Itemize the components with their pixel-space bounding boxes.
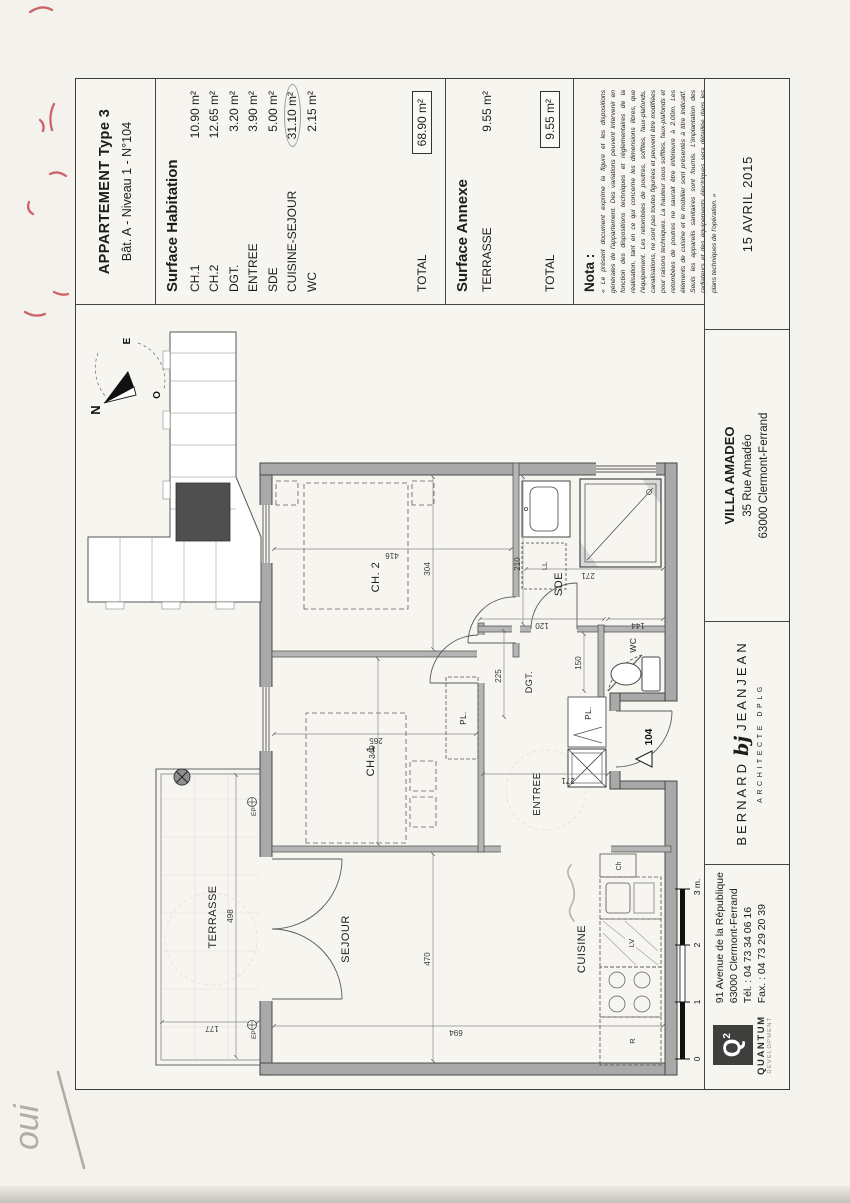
compass-n: N [88,405,103,414]
bathroom-fixtures [522,479,661,691]
compass-o: O [152,391,163,399]
architect-block: BERNARD bj JEANJEAN ARCHITECTE DPLG [705,621,789,864]
key-plan-highlighted-unit [176,483,230,541]
fixture-label-ll: LL [540,562,549,570]
room-label-sejour: SEJOUR [340,915,352,963]
apartment-location-subtitle: Bât. A - Niveau 1 - N°104 [120,122,134,261]
architect-name2: JEANJEAN [734,640,749,730]
architect-name: BERNARD bj JEANJEAN [731,640,753,845]
apartment-type-title: APPARTEMENT Type 3 [97,109,113,274]
room-label-cuisine: CUISINE [576,925,588,973]
nota-heading: Nota : [574,79,599,304]
room-label-dgt: DGT. [524,671,534,694]
surface-row-label: CUISINE-SEJOUR [285,191,299,292]
date-cell: 15 AVRIL 2015 [705,79,789,329]
developer-address-line: 91 Avenue de la République [714,872,728,1003]
scale-0: 0 [692,1056,702,1061]
dim-terrasse-depth: 177 [205,1024,219,1033]
scanner-edge-shadow [0,1186,850,1203]
shaft-and-closets [446,677,606,787]
room-label-terrasse: TERRASSE [207,885,219,948]
scale-1: 1 [692,999,702,1004]
room-label-sde: SDE [553,572,565,596]
surface-row-label: CH.2 [207,265,221,292]
surface-habitation-heading: Surface Habitation [156,79,185,304]
surface-row-value: 10.90 m² [188,91,202,138]
surface-row-cuisine-sejour: CUISINE-SEJOUR 31.10 m² [283,79,303,304]
dim-terrasse-width: 498 [226,909,235,923]
surface-row-label: DGT. [227,265,241,292]
surface-row: ENTREE 3.90 m² [244,79,264,304]
developer-address: 91 Avenue de la République 63000 Clermon… [713,872,769,1003]
nota-body-text: « Le présent document exprime la figure … [599,79,720,304]
document-date: 15 AVRIL 2015 [740,156,755,252]
developer-fax: Fax. : 04 73 29 20 39 [756,872,770,1003]
developer-address-line: 63000 Clermont-Ferrand [728,872,742,1003]
surface-habitation-total-row: TOTAL 68.90 m² [412,79,432,304]
furniture [276,481,436,843]
room-label-ch1: CH. 1 [365,746,377,777]
surface-row-label: CH.1 [188,265,202,292]
dim-wc-width: 150 [574,656,583,670]
handwritten-oui-text: oui [8,1103,46,1150]
light-point [174,769,190,785]
total-value: 68.90 m² [412,91,432,154]
key-plan [88,332,261,609]
architect-subtitle: ARCHITECTE DPLG [757,683,764,803]
scale-3: 3 m. [692,879,702,896]
dim-entree-depth: 271 [561,776,575,785]
ep-markers: EP EP [248,798,259,1040]
dim-sde-depth: 271 [581,571,595,580]
developer-block: Q2 QUANTUM DEVELOPMENT 91 Avenue de la R… [705,864,789,1089]
dim-ch1-depth: 265 [369,736,383,745]
surface-row: DGT. 3.20 m² [224,79,244,304]
developer-subname: DEVELOPMENT [767,1017,773,1074]
surface-row-label: ENTREE [246,243,260,292]
surface-row: SDE 5.00 m² [263,79,283,304]
developer-name: QUANTUM [756,1015,767,1075]
surface-habitation-table: Surface Habitation CH.1 10.90 m² CH.2 12… [156,79,446,304]
ep-label-1: EP [251,1030,258,1039]
dim-wc-seg: 144 [631,621,645,630]
total-label: TOTAL [543,254,557,292]
surface-row-label: TERRASSE [480,227,494,292]
architect-name1: BERNARD [734,761,749,846]
developer-phone: Tél. : 04 73 34 06 16 [742,872,756,1003]
nota-section: Nota : « Le présent document exprime la … [574,79,702,304]
pencil-scribble [568,865,574,921]
surface-annexe-table: Surface Annexe TERRASSE 9.55 m² TOTAL 9.… [446,79,574,304]
fixture-label-fridge: R [628,1038,637,1044]
surface-annexe-heading: Surface Annexe [446,79,475,304]
dim-sejour-width: 470 [423,952,432,966]
logo-sup: 2 [722,1033,733,1039]
red-pen-marks [10,0,90,340]
room-label-pl1: PL. [584,706,593,720]
compass-e: E [122,337,133,344]
quantum-logo-icon: Q2 [713,1025,753,1065]
project-name: VILLA AMADEO [721,427,740,525]
surface-row-label: WC [305,272,319,292]
surface-row-value: 3.90 m² [246,91,260,132]
unit-number: 104 [644,728,655,745]
kitchen-fixtures [600,854,661,1065]
fixture-label-lv: LV [627,939,636,948]
surface-row-value: 12.65 m² [207,91,221,138]
architect-logo-icon: bj [731,736,753,756]
interior-walls [272,463,671,852]
surface-row-label: SDE [266,267,280,292]
surface-row: CH.2 12.65 m² [205,79,225,304]
surface-row-value: 3.20 m² [227,91,241,132]
surface-row-value: 2.15 m² [305,91,319,132]
handwritten-oui: oui [0,1040,120,1203]
circled-value: 31.10 m² [284,84,301,147]
scale-bar: 0 1 2 3 m. [675,879,702,1062]
dim-ch2-width: 304 [423,562,432,576]
ep-label-2: EP [251,807,258,816]
title-block-column: APPARTEMENT Type 3 Bât. A - Niveau 1 - N… [76,79,704,305]
surface-row-value: 9.55 m² [480,91,494,132]
doors [272,583,672,999]
title-strip: Q2 QUANTUM DEVELOPMENT 91 Avenue de la R… [704,79,789,1089]
scanned-page: 498 177 470 694 349 265 304 416 210 271 … [0,0,850,1203]
total-value: 9.55 m² [540,91,560,148]
room-label-entree: ENTREE [532,772,543,816]
scale-2: 2 [692,942,702,947]
logo-letter: Q [719,1039,747,1058]
total-label: TOTAL [415,254,429,292]
fixture-labels: LL LV R Ch [540,562,637,1044]
fixture-label-ch: Ch [616,861,623,870]
surface-row: CH.1 10.90 m² [185,79,205,304]
room-label-wc: WC [628,637,638,652]
dim-dgt-seg: 120 [535,621,549,630]
dim-ch2-depth: 416 [385,551,399,560]
project-address-line: 63000 Clermont-Ferrand [756,413,773,539]
dim-overall-depth: 694 [449,1028,463,1037]
room-label-pl2: PL. [459,711,468,725]
floor-plan-area: 498 177 470 694 349 265 304 416 210 271 … [76,305,704,1089]
surface-row: TERRASSE 9.55 m² [477,79,497,304]
surface-row-value: 5.00 m² [266,91,280,132]
unit-marker: 104 [636,728,655,767]
dim-dgt-width: 225 [494,669,503,683]
developer-logo: Q2 QUANTUM DEVELOPMENT [713,1015,773,1075]
project-block: VILLA AMADEO 35 Rue Amadéo 63000 Clermon… [705,329,789,621]
floor-plan-svg: 498 177 470 694 349 265 304 416 210 271 … [76,305,704,1089]
project-address-line: 35 Rue Amadéo [740,434,757,516]
dim-sde-width: 210 [513,557,522,571]
room-label-ch2: CH. 2 [370,562,382,593]
compass: N E O [88,337,165,414]
surface-annexe-total-row: TOTAL 9.55 m² [540,79,560,304]
plan-sheet: 498 177 470 694 349 265 304 416 210 271 … [75,78,790,1090]
surface-row: WC 2.15 m² [302,79,322,304]
